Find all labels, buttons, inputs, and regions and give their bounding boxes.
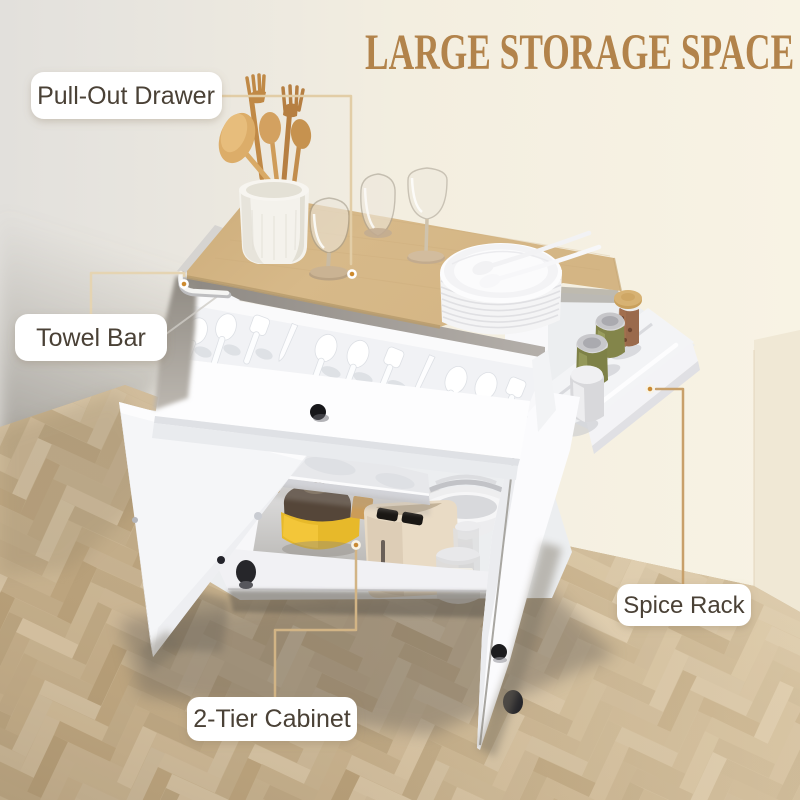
svg-text:Pull-Out Drawer: Pull-Out Drawer <box>37 82 215 110</box>
svg-text:Towel Bar: Towel Bar <box>36 324 146 352</box>
svg-text:LARGE STORAGE SPACE: LARGE STORAGE SPACE <box>365 25 794 81</box>
svg-text:2-Tier Cabinet: 2-Tier Cabinet <box>193 705 351 733</box>
svg-text:Spice Rack: Spice Rack <box>623 592 745 619</box>
